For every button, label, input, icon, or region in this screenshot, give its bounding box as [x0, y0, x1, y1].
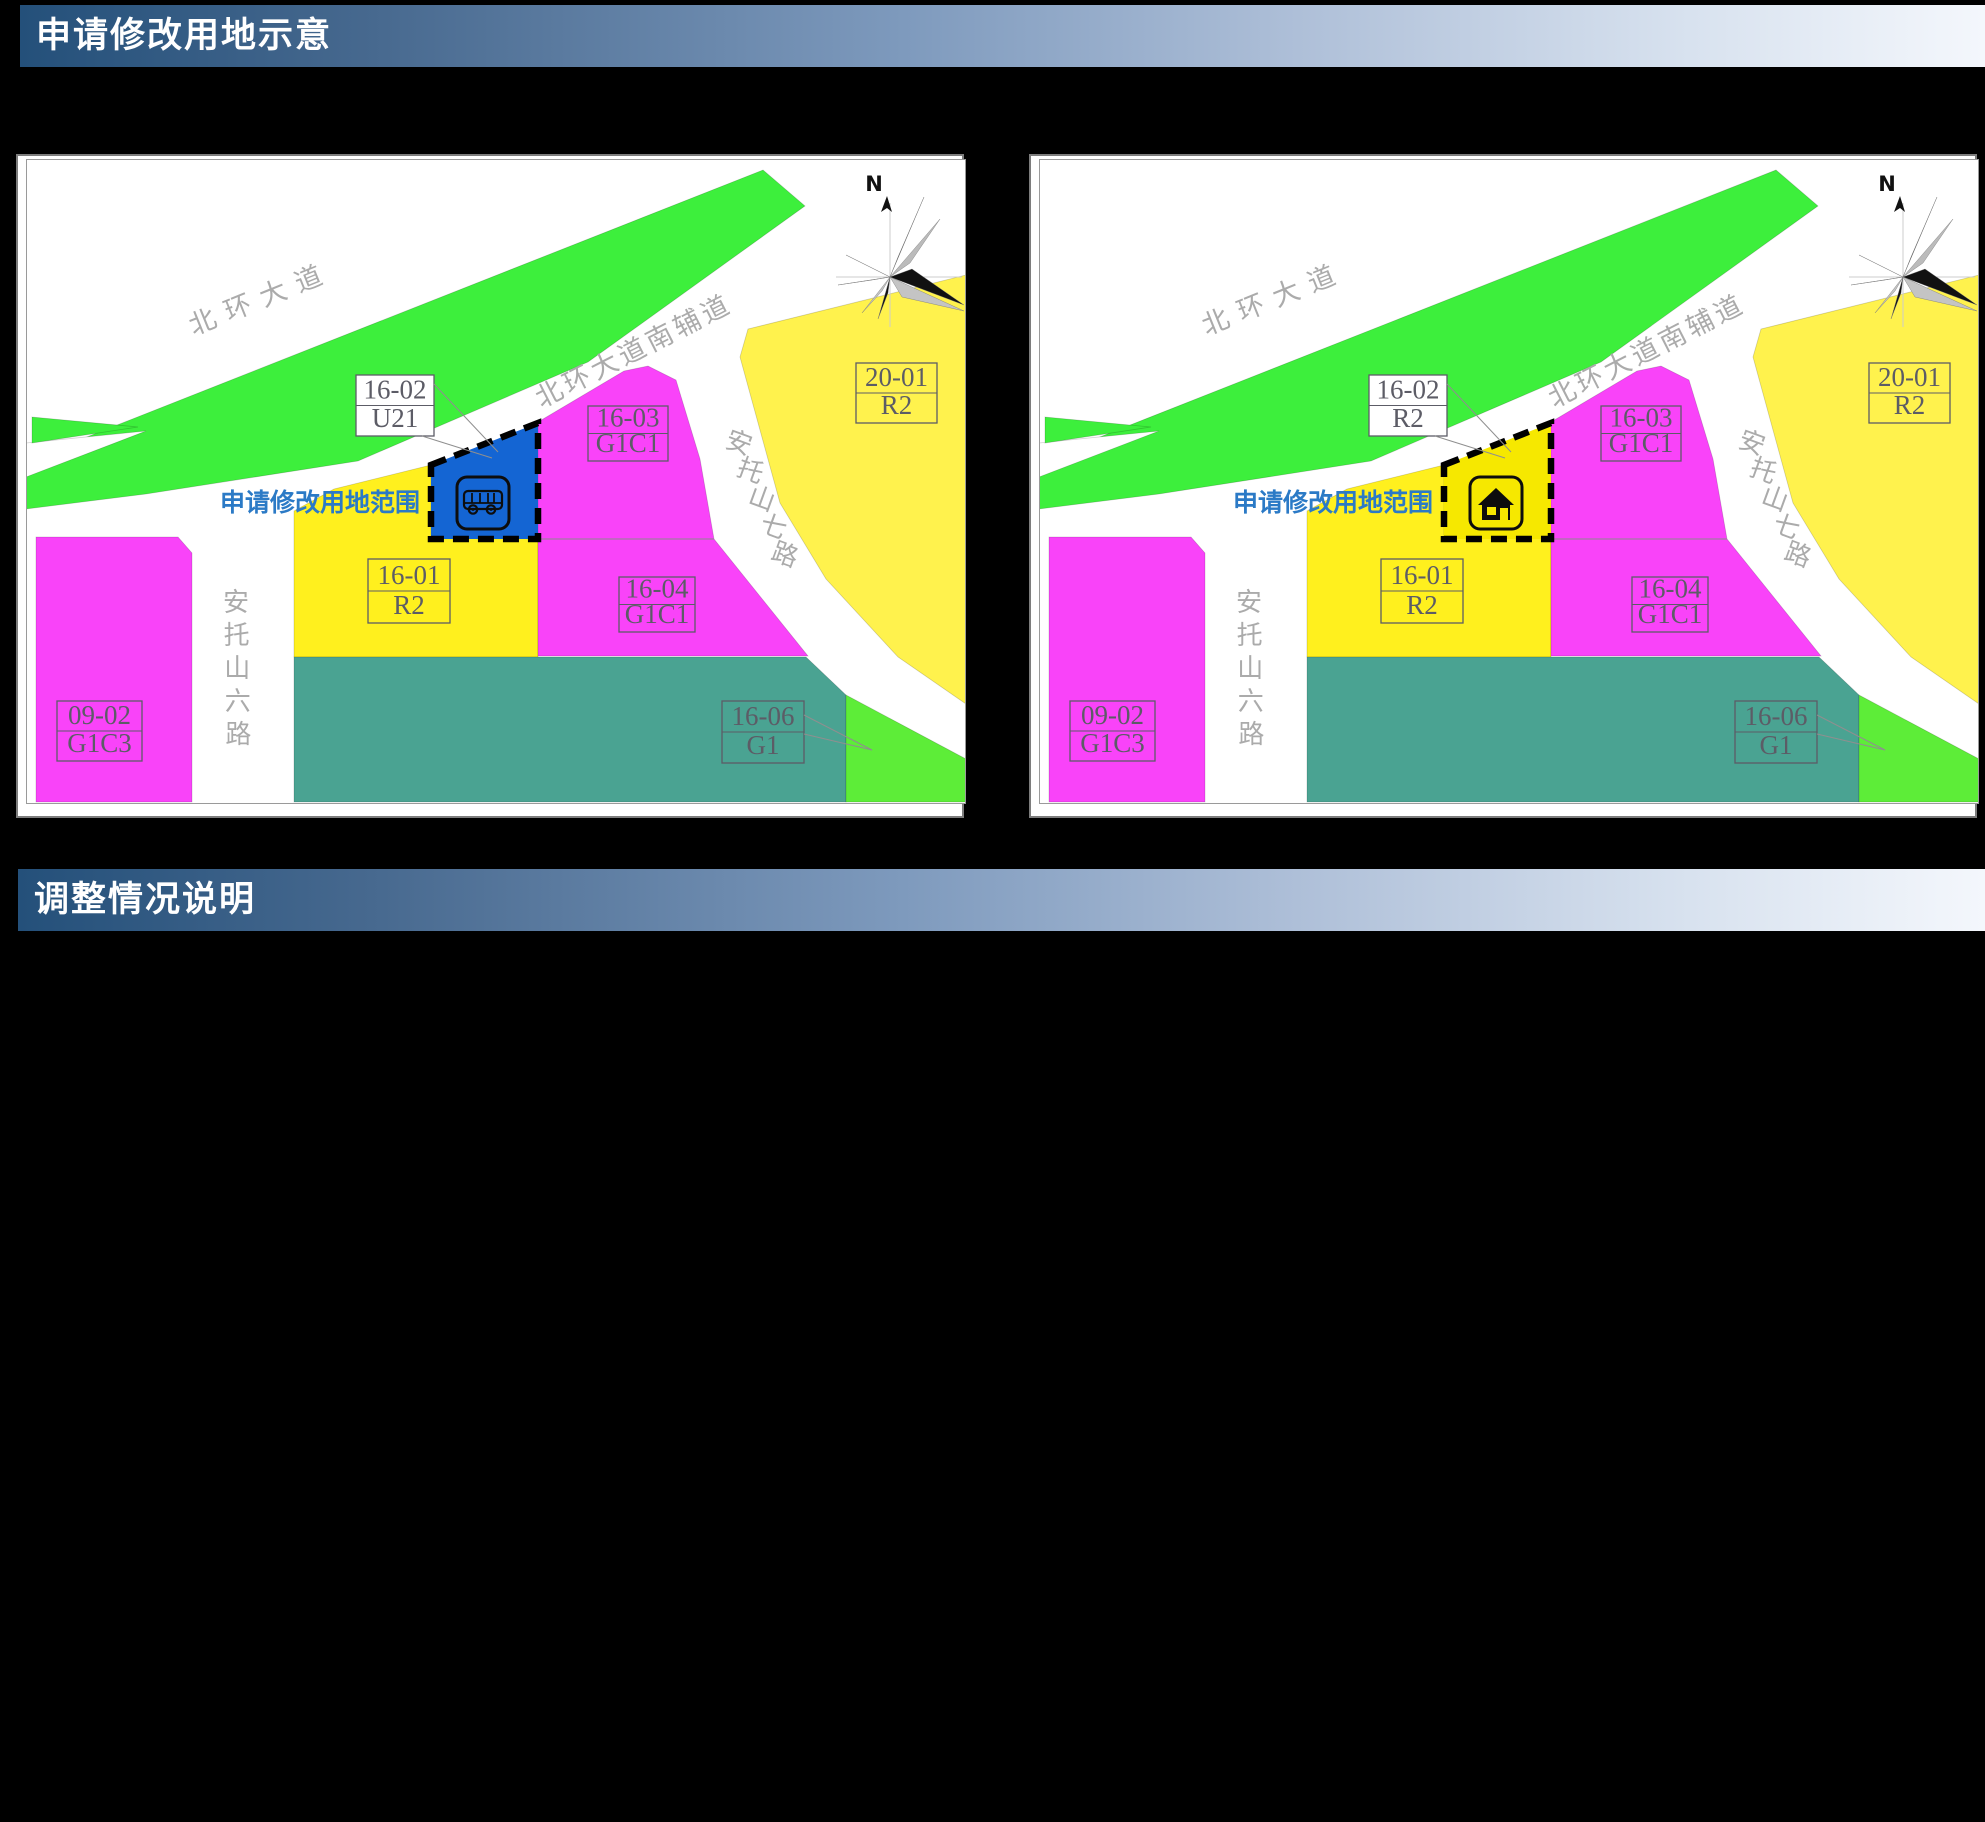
- section-header-request: 申请修改用地示意: [20, 5, 1985, 67]
- parcel-label-16-03: 16-03G1C1: [1601, 403, 1681, 462]
- house-door: [1500, 508, 1508, 520]
- parcel-09-02: [36, 537, 192, 802]
- parcel-label-16-02-use: U21: [372, 403, 419, 433]
- parcel-label-16-04-use: G1C1: [1638, 599, 1703, 629]
- parcel-label-16-02-code: 16-02: [364, 375, 427, 405]
- parcel-label-09-02: 09-02G1C3: [57, 700, 142, 761]
- parcel-label-20-01-code: 20-01: [865, 362, 928, 392]
- road-label-antuoshan6-char-1: 托: [1237, 621, 1263, 650]
- zoning-map-before: 北环大道北环大道南辅道安托山六路安托山七路09-02G1C316-01R216-…: [26, 159, 966, 804]
- parcel-label-16-02-use: R2: [1392, 403, 1424, 433]
- road-label-antuoshan6-char-1: 托: [224, 621, 250, 650]
- parcel-label-09-02-use: G1C3: [1080, 728, 1145, 758]
- parcel-label-16-03-use: G1C1: [596, 428, 661, 458]
- parcel-label-16-03: 16-03G1C1: [588, 403, 668, 462]
- road-label-antuoshan6-char-0: 安: [223, 588, 249, 617]
- road-label-antuoshan6-char-3: 六: [225, 687, 251, 716]
- page: { "headers": { "section1": "申请修改用地示意", "…: [0, 0, 1985, 1822]
- compass-north-label: N: [865, 172, 883, 196]
- parcel-label-16-04: 16-04G1C1: [1632, 574, 1708, 633]
- road-label-antuoshan6-char-4: 路: [225, 720, 251, 749]
- road-label-antuoshan6-char-2: 山: [1237, 654, 1263, 683]
- parcel-label-16-01-code: 16-01: [378, 560, 441, 590]
- parcel-label-16-06-use: G1: [747, 730, 780, 760]
- house-window: [1487, 507, 1496, 515]
- zoning-map-panel-after: 北环大道北环大道南辅道安托山六路安托山七路09-02G1C316-01R216-…: [1029, 154, 1977, 818]
- parcel-label-16-04-use: G1C1: [625, 599, 690, 629]
- zoning-map-panel-before: 北环大道北环大道南辅道安托山六路安托山七路09-02G1C316-01R216-…: [16, 154, 964, 818]
- parcel-label-16-06-code: 16-06: [732, 701, 795, 731]
- parcel-label-16-01-use: R2: [1406, 590, 1438, 620]
- parcel-label-09-02-use: G1C3: [67, 728, 132, 758]
- road-label-antuoshan6-char-3: 六: [1238, 687, 1264, 716]
- parcel-label-20-01-code: 20-01: [1878, 362, 1941, 392]
- road-label-antuoshan6-char-2: 山: [224, 654, 250, 683]
- road-label-antuoshan6-char-4: 路: [1238, 720, 1264, 749]
- parcel-label-09-02: 09-02G1C3: [1070, 700, 1155, 761]
- modified-area-annotation: 申请修改用地范围: [220, 488, 420, 517]
- road-label-antuoshan6-char-0: 安: [1236, 588, 1262, 617]
- parcel-label-16-06-use: G1: [1760, 730, 1793, 760]
- bus-hub-left: [472, 508, 475, 511]
- parcel-label-09-02-code: 09-02: [1081, 700, 1144, 730]
- zoning-map-after: 北环大道北环大道南辅道安托山六路安托山七路09-02G1C316-01R216-…: [1039, 159, 1979, 804]
- parcel-09-02: [1049, 537, 1205, 802]
- parcel-label-16-01-code: 16-01: [1391, 560, 1454, 590]
- parcel-label-16-03-use: G1C1: [1609, 428, 1674, 458]
- road-label-antuoshan6: 安托山六路: [1236, 588, 1264, 749]
- parcel-label-16-04: 16-04G1C1: [619, 574, 695, 633]
- parcel-label-20-01-use: R2: [1894, 390, 1926, 420]
- parcel-label-20-01-use: R2: [881, 390, 913, 420]
- road-label-antuoshan6: 安托山六路: [223, 588, 251, 749]
- modified-area-annotation: 申请修改用地范围: [1233, 488, 1433, 517]
- parcel-label-09-02-code: 09-02: [68, 700, 131, 730]
- bus-hub-right: [490, 508, 493, 511]
- parcel-label-16-01-use: R2: [393, 590, 425, 620]
- parcel-label-16-06-code: 16-06: [1745, 701, 1808, 731]
- compass-north-label: N: [1878, 172, 1896, 196]
- section-header-adjustment: 调整情况说明: [18, 869, 1985, 931]
- parcel-label-16-02-code: 16-02: [1377, 375, 1440, 405]
